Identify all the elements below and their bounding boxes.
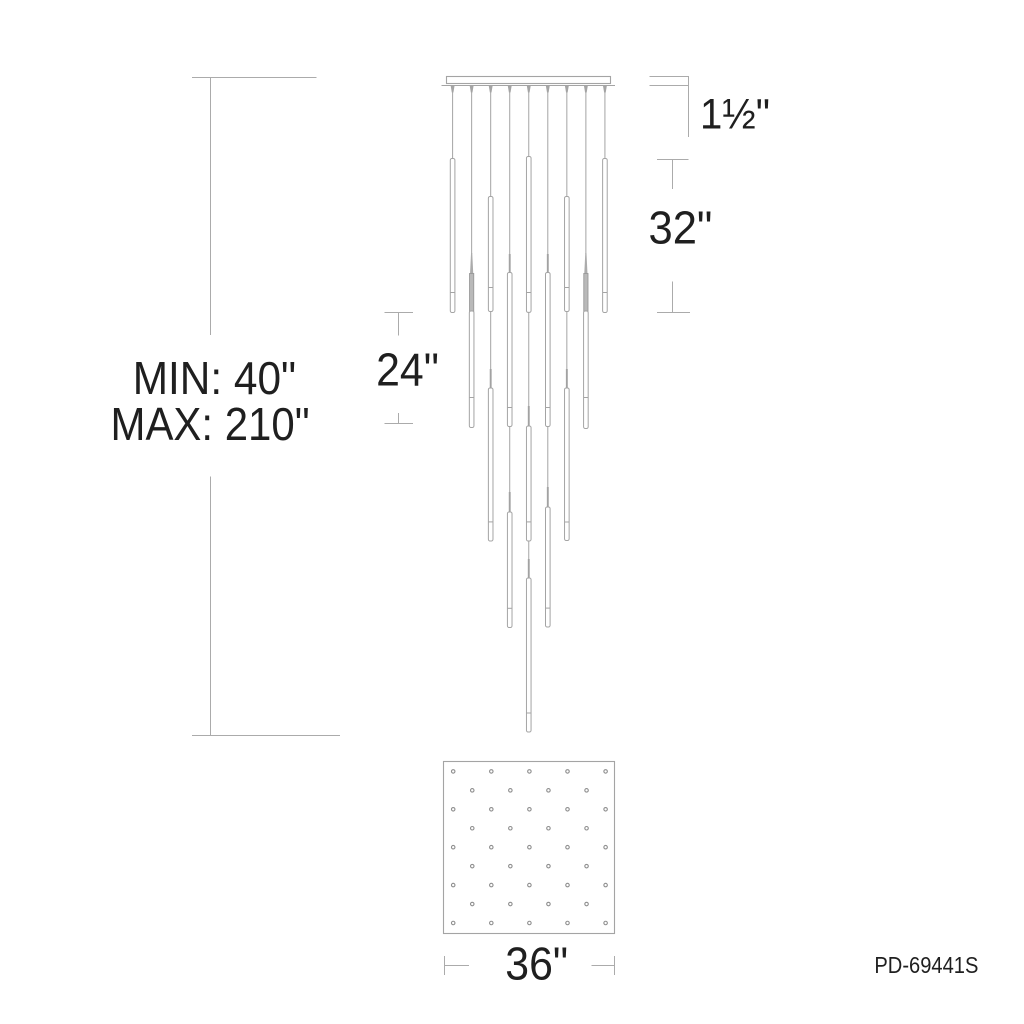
svg-text:MAX: 210": MAX: 210" — [111, 398, 310, 450]
svg-text:24": 24" — [376, 344, 439, 396]
svg-text:MIN: 40": MIN: 40" — [133, 352, 296, 404]
svg-text:36": 36" — [505, 937, 568, 989]
svg-text:32": 32" — [649, 202, 713, 254]
svg-text:1½": 1½" — [700, 91, 770, 139]
svg-text:PD-69441S: PD-69441S — [874, 952, 978, 978]
